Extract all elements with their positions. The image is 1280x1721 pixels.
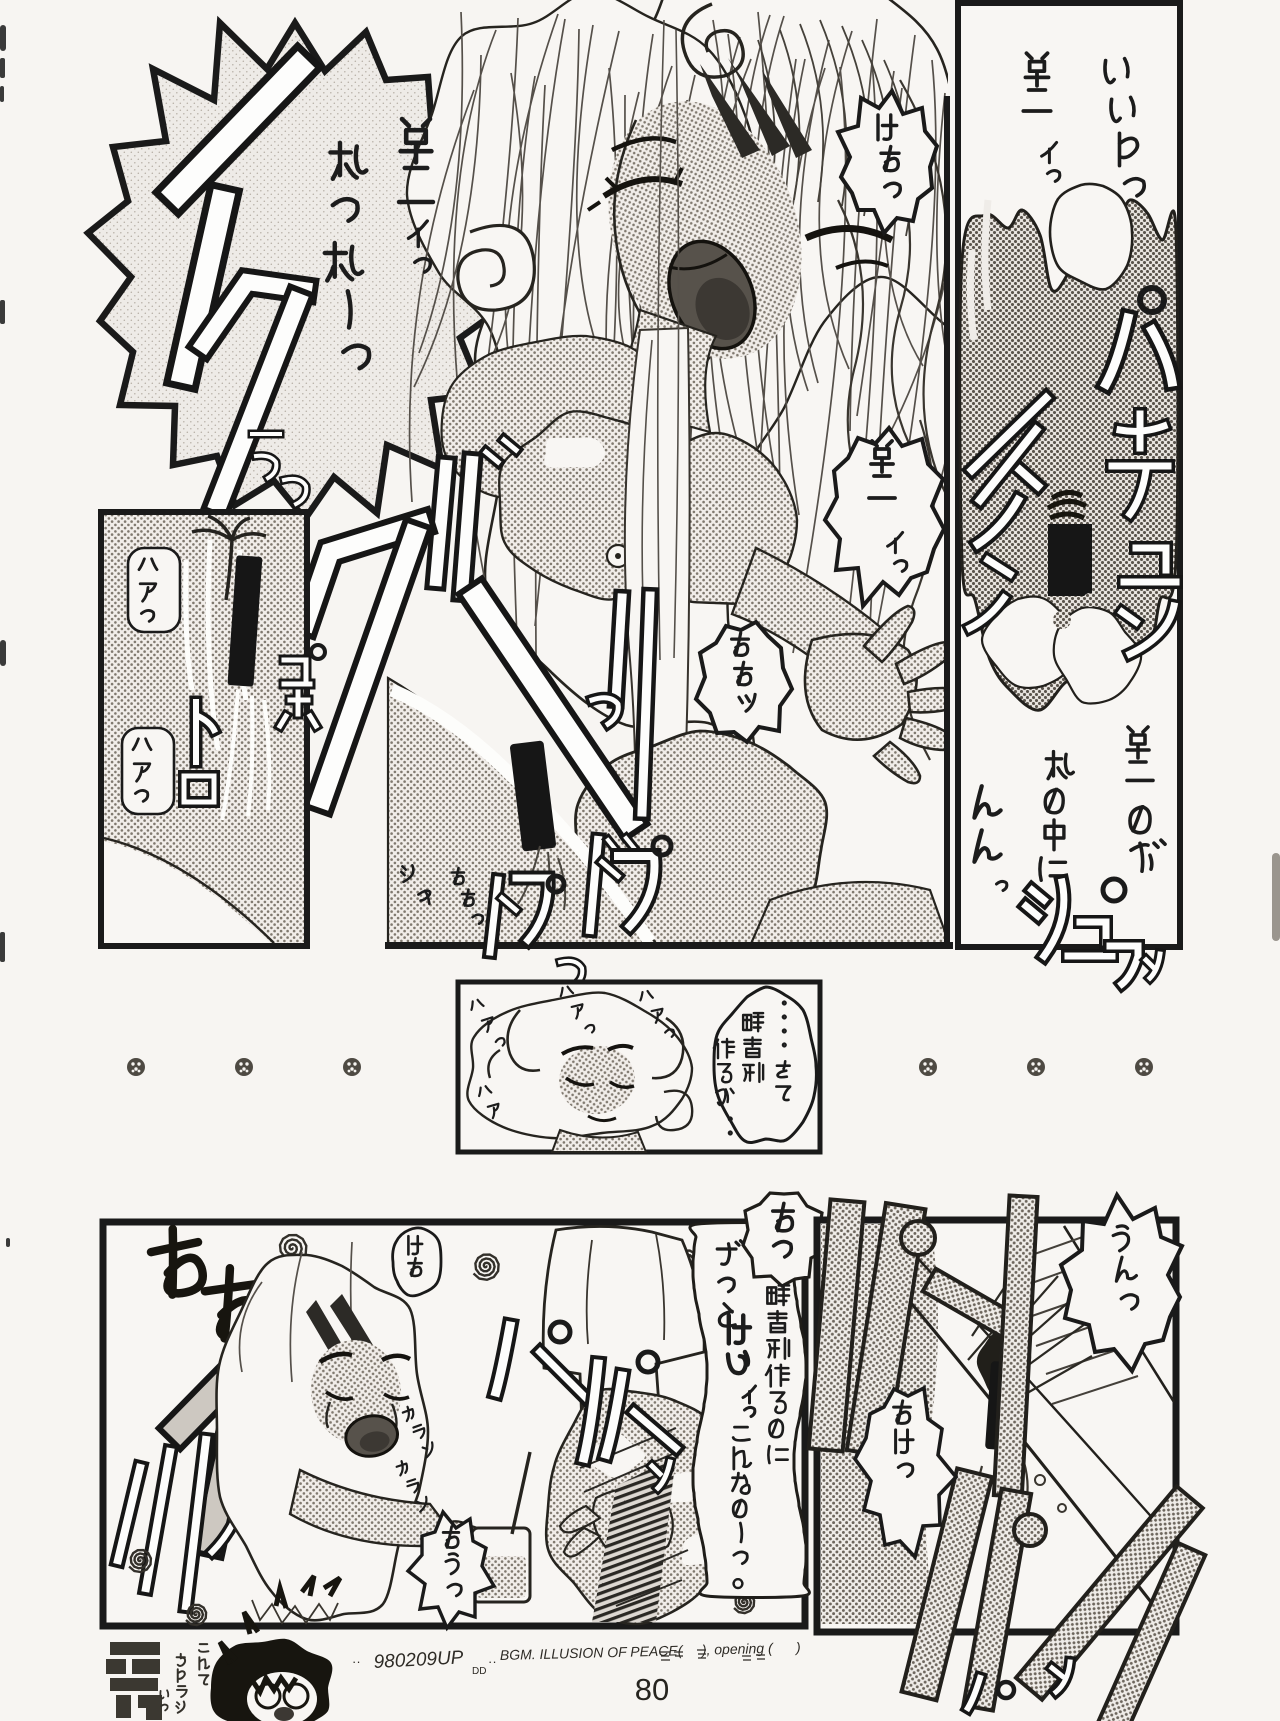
svg-text:··: ··	[352, 1654, 361, 1669]
svg-text:··: ··	[488, 1654, 497, 1669]
svg-text:80: 80	[635, 1672, 669, 1707]
svg-text:DD: DD	[472, 1666, 486, 1677]
